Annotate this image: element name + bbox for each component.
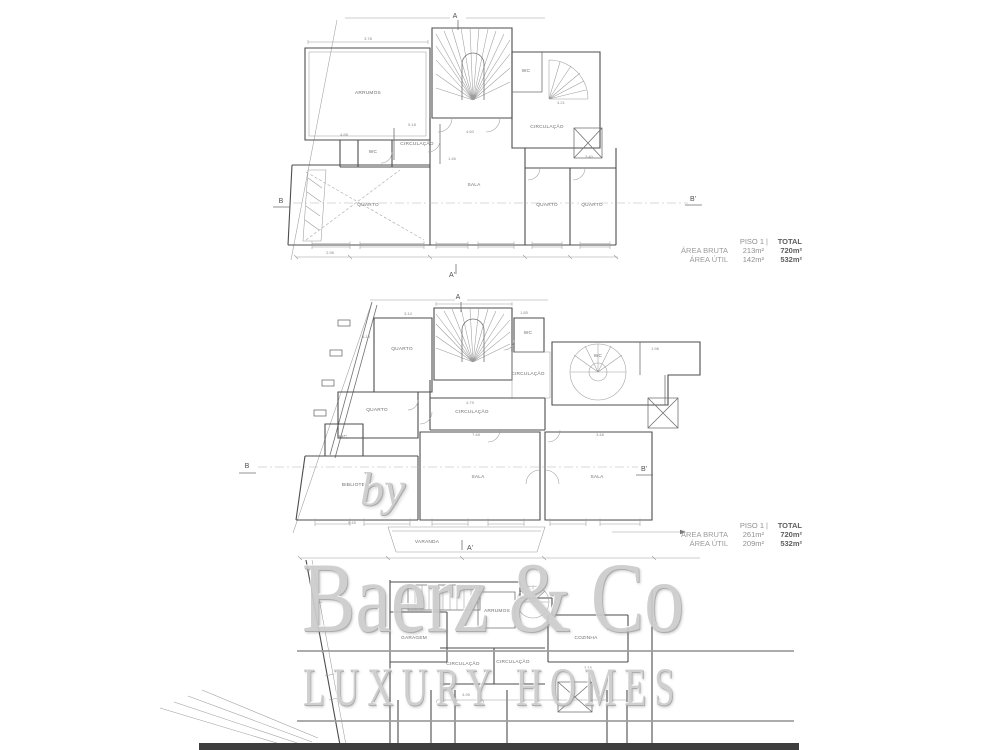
row-value: 209m² xyxy=(728,540,764,549)
dimension-label: 3.40 xyxy=(585,154,594,159)
floor-plan-main-linework: QUARTOWCCIRCULAÇÃOWCCIRCULAÇÃOQUARTOWCBI… xyxy=(239,294,700,560)
dimension-label: 7.48 xyxy=(472,432,481,437)
dimension-label: 3.78 xyxy=(364,36,373,41)
floor-plan-upper-linework: ARRUMOSCIRCULAÇÃOWCWCCIRCULAÇÃOQUARTOSAL… xyxy=(273,13,702,279)
row-label: ÁREA ÚTIL xyxy=(676,256,728,265)
watermark-by: by xyxy=(360,462,405,517)
dimension-label: 4.21 xyxy=(557,100,566,105)
dimension-label: 3.48 xyxy=(596,432,605,437)
dimension-label: 5.45 xyxy=(348,520,357,525)
dimension-label: 4.88 xyxy=(340,132,349,137)
dimension-label: 3.14 xyxy=(404,311,413,316)
dimension-label: 5.18 xyxy=(362,334,371,339)
dimension-label: 1.46 xyxy=(448,156,457,161)
room-label: SALA xyxy=(590,474,604,480)
dimension-label: 1.98 xyxy=(651,346,660,351)
dimension-label: 5.18 xyxy=(408,122,417,127)
section-marker: B' xyxy=(641,466,647,473)
section-marker: A xyxy=(456,294,461,301)
table-row: ÁREA ÚTIL 209m² 532m² xyxy=(676,540,802,549)
room-label: QUARTO xyxy=(357,202,379,208)
section-marker: B xyxy=(245,463,250,470)
room-label: CIRCULAÇÃO xyxy=(455,408,489,415)
dimension-label: 2.98 xyxy=(326,250,335,255)
footer-bar xyxy=(199,743,799,750)
floor-plan-sheet: ARRUMOSCIRCULAÇÃOWCWCCIRCULAÇÃOQUARTOSAL… xyxy=(0,0,1000,750)
room-label: WC xyxy=(522,68,531,74)
watermark-brand: Baerz & Co xyxy=(302,540,684,655)
watermark-rule-bottom xyxy=(297,720,794,722)
room-label: CIRCULAÇÃO xyxy=(511,370,545,377)
room-label: WC xyxy=(524,330,533,336)
room-label: CIRCULAÇÃO xyxy=(530,123,564,130)
room-label: SALA xyxy=(471,474,485,480)
section-marker: B xyxy=(279,198,284,205)
room-label: WC xyxy=(339,434,348,440)
room-label: ARRUMOS xyxy=(355,90,381,96)
area-table-upper-floor: PISO 1 | TOTAL ÁREA BRUTA 213m² 720m² ÁR… xyxy=(676,238,802,264)
row-total: 532m² xyxy=(770,256,802,265)
room-label: SALA xyxy=(467,182,481,188)
room-label: QUARTO xyxy=(366,407,388,413)
section-marker: A xyxy=(453,13,458,20)
dimension-label: 4.60 xyxy=(466,129,475,134)
row-total: 532m² xyxy=(770,540,802,549)
room-label: QUARTO xyxy=(536,202,558,208)
room-label: CIRCULAÇÃO xyxy=(400,140,434,147)
watermark-tagline: LUXURY HOMES xyxy=(303,656,683,718)
room-label: WC xyxy=(594,353,603,359)
dimension-label: 1.85 xyxy=(520,310,529,315)
table-row: ÁREA ÚTIL 142m² 532m² xyxy=(676,256,802,265)
dimension-label: 4.79 xyxy=(466,400,475,405)
area-table-main-floor: PISO 1 | TOTAL ÁREA BRUTA 261m² 720m² ÁR… xyxy=(676,522,802,548)
section-marker: A' xyxy=(449,272,455,279)
row-value: 142m² xyxy=(728,256,764,265)
section-marker: B' xyxy=(690,196,696,203)
room-label: QUARTO xyxy=(391,346,413,352)
row-label: ÁREA ÚTIL xyxy=(676,540,728,549)
room-label: QUARTO xyxy=(581,202,603,208)
watermark-rule-top xyxy=(297,650,794,652)
room-label: WC xyxy=(369,149,378,155)
